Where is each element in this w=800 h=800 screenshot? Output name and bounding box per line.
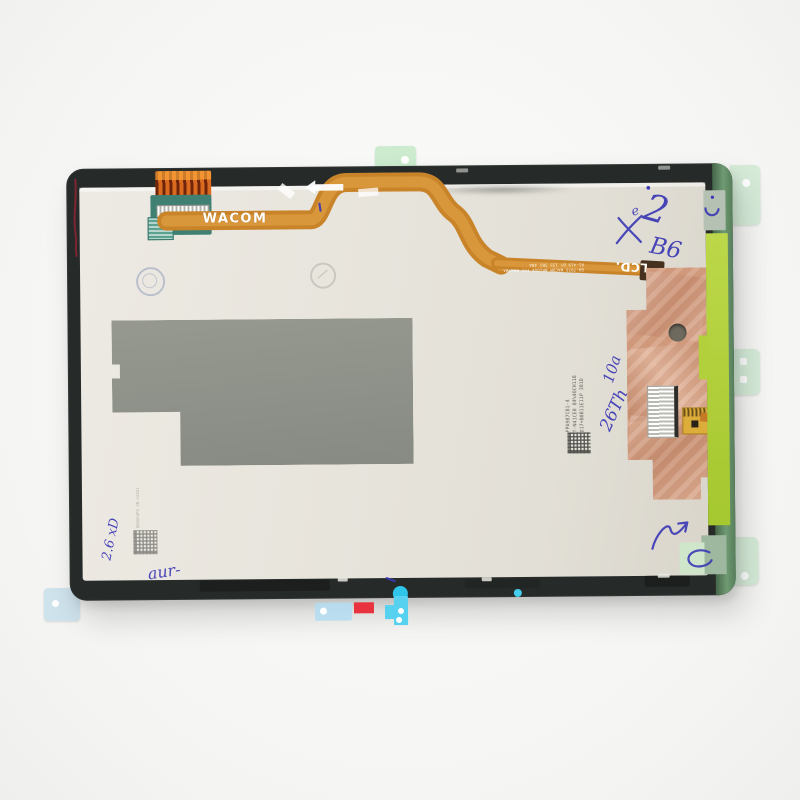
corner-tape-bottom-right-sage bbox=[701, 535, 726, 574]
wacom-ribbon-label: WACOM bbox=[203, 211, 268, 226]
frame-white-tick bbox=[482, 577, 492, 581]
tab-hole bbox=[742, 179, 750, 187]
lcd-zif-connector bbox=[647, 386, 678, 438]
qc-stamp bbox=[310, 263, 336, 289]
frame-component-bar bbox=[465, 579, 540, 589]
foil-screw-hole bbox=[669, 324, 687, 342]
qc-stamp-mark bbox=[317, 270, 328, 279]
datamatrix-code-left bbox=[133, 530, 157, 554]
corner-tape-top-right bbox=[703, 190, 725, 230]
frame-component-bar bbox=[200, 580, 330, 592]
tab-hole bbox=[401, 156, 409, 164]
qc-stamp bbox=[136, 267, 165, 296]
lcd-flex-label: LCD. bbox=[615, 259, 649, 274]
flex-microtext-line: GH-7975 WACOM BRIDGE FPC R04 #A bbox=[494, 267, 584, 273]
panel-serial-print-left: DB0UK4P5 VN-CA3O1 bbox=[135, 486, 149, 528]
wacom-sub-connector bbox=[148, 217, 174, 240]
bottom-adhesive-red bbox=[354, 602, 374, 613]
cyan-dot-sticker bbox=[514, 589, 522, 597]
corner-tape-bottom-right-pale bbox=[679, 542, 704, 574]
flex-microtext: GH-7975 WACOM BRIDGE FPC R04 #A 01-419 B… bbox=[494, 262, 584, 273]
qc-stamp-inner-ring bbox=[142, 273, 157, 288]
photo-stage: WACOM LCD. GH-7975 WACOM BRIDGE FPC R04 … bbox=[0, 0, 800, 800]
panel-serial-print: FPA987CB1-4 T-N41CE0 84%4OCH118 D17+B0B1… bbox=[564, 320, 587, 432]
bottom-adhesive-blue bbox=[315, 602, 352, 620]
adhesive-tab-right-middle bbox=[730, 349, 760, 395]
frame-white-tick bbox=[456, 168, 468, 172]
frame-white-tick bbox=[658, 166, 670, 170]
cyan-foot bbox=[385, 605, 395, 619]
adhesive-hole bbox=[320, 608, 327, 615]
serial-line: D17+B0B11E11P 381D bbox=[578, 320, 586, 432]
tab-hole bbox=[741, 572, 749, 580]
adhesive-hole bbox=[398, 608, 404, 614]
tab-hole bbox=[740, 376, 747, 383]
tablet-lcd-assembly: WACOM LCD. GH-7975 WACOM BRIDGE FPC R04 … bbox=[66, 163, 736, 601]
lime-tape-bump bbox=[699, 335, 708, 379]
adhesive-hole bbox=[396, 617, 402, 623]
frame-white-tick bbox=[338, 577, 348, 581]
tab-hole bbox=[52, 600, 59, 607]
adhesive-tab-right-top bbox=[730, 165, 761, 225]
bottom-adhesive-cyan bbox=[385, 586, 413, 626]
frame-white-tick bbox=[658, 574, 670, 578]
tab-hole bbox=[740, 358, 747, 365]
lime-tape-strip bbox=[706, 233, 731, 525]
datamatrix-code-right bbox=[567, 432, 590, 453]
gold-connector-chip bbox=[691, 420, 698, 427]
